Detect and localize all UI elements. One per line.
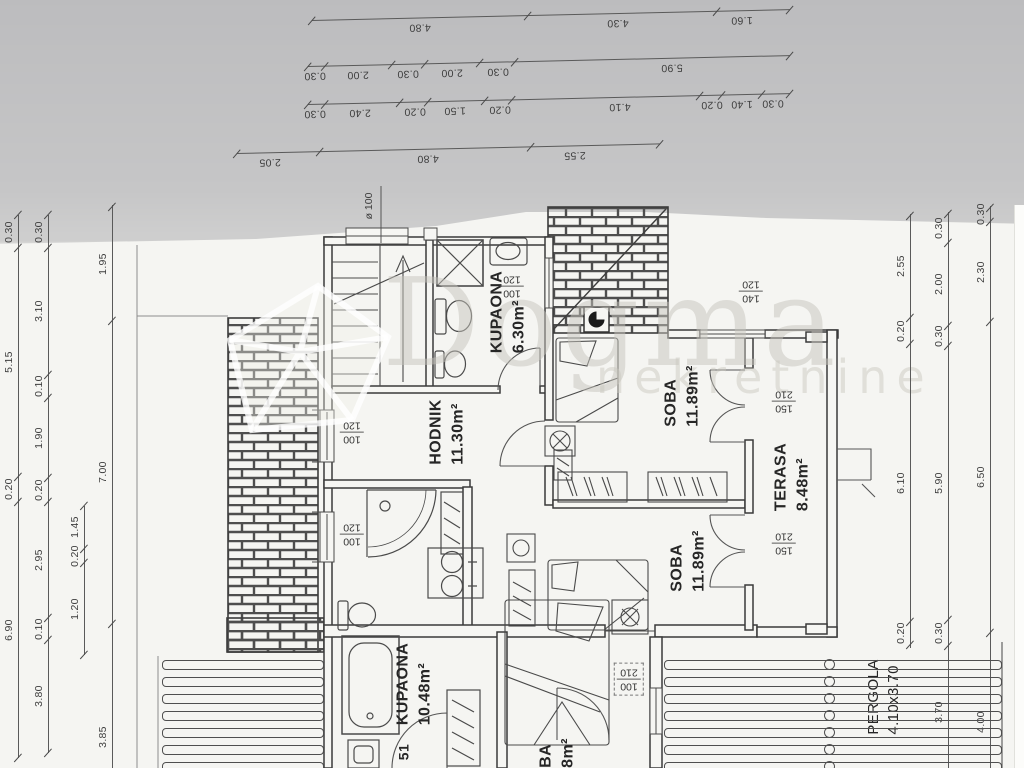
opening-size-value: 120 xyxy=(340,520,364,534)
dimension-label: 2.05 xyxy=(259,156,281,168)
room-label-partial-51: 51 xyxy=(395,744,414,760)
dimension-label: 0.30 xyxy=(397,67,419,79)
pergola-post xyxy=(824,761,835,768)
pergola-slat xyxy=(162,677,324,687)
dimension-label: 0.20 xyxy=(701,99,723,111)
dimension-line xyxy=(910,214,911,648)
dimension-label: 0.30 xyxy=(3,221,15,243)
opening-size-value: 210 xyxy=(772,529,796,543)
dimension-label: 1.45 xyxy=(69,516,81,538)
dimension-label: 0.30 xyxy=(933,217,945,239)
dimension-label: 0.20 xyxy=(3,478,15,500)
pergola-post xyxy=(824,710,835,721)
dimension-label: 2.40 xyxy=(349,107,371,119)
opening-size-value: 120 xyxy=(500,272,524,286)
window-kupaona-1-size-label: 100120 xyxy=(500,272,524,299)
dimension-label: 0.20 xyxy=(895,320,907,342)
dimension-label: 0.30 xyxy=(933,325,945,347)
pergola-post xyxy=(824,659,835,670)
room-name: SOBA xyxy=(666,530,688,592)
room-area: 11.89m² xyxy=(682,365,704,427)
room-label-soba-1: SOBA 11.89m² xyxy=(660,365,703,427)
window-soba-1-north-size-label: 140120 xyxy=(739,277,763,304)
room-label-terasa: TERASA 8.48m² xyxy=(770,443,813,511)
dimension-line xyxy=(48,215,49,753)
dimension-label: 3.85 xyxy=(97,726,109,748)
opening-size-value: 100 xyxy=(617,680,641,693)
dimension-label: 0.20 xyxy=(33,479,45,501)
opening-size-value: 100 xyxy=(340,535,364,548)
dimension-label: 6.10 xyxy=(895,472,907,494)
dimension-label: 0.20 xyxy=(69,545,81,567)
room-label-soba-3-partial: BA 8m² xyxy=(535,738,578,768)
dimension-label: 0.30 xyxy=(304,70,326,82)
room-area: 8.48m² xyxy=(792,443,814,511)
dimension-line xyxy=(18,215,19,758)
dimension-label: 1.40 xyxy=(731,98,753,110)
pipe-diameter-label: ø 100 xyxy=(363,193,375,220)
opening-size-value: 210 xyxy=(772,387,796,401)
dimension-label: 5.90 xyxy=(661,61,683,73)
dimension-label: 4.10 xyxy=(609,101,631,113)
dimension-label: 2.00 xyxy=(933,273,945,295)
window-hodnik-size-label: 100120 xyxy=(340,418,364,445)
dimension-label: 2.95 xyxy=(33,549,45,571)
dimension-label: 5.15 xyxy=(3,351,15,373)
room-area: 10.48m² xyxy=(414,643,436,726)
pergola-post xyxy=(824,727,835,738)
room-name: 51 xyxy=(395,744,414,760)
pergola-slat xyxy=(162,660,324,670)
opening-size-value: 210 xyxy=(617,665,641,679)
room-label-hodnik: HODNIK 11.30m² xyxy=(425,399,468,465)
pergola-post xyxy=(824,676,835,687)
pergola-slat xyxy=(162,711,324,721)
opening-size-value: 120 xyxy=(739,277,763,291)
room-name: KUPAONA xyxy=(392,643,414,726)
dimension-label: 0.10 xyxy=(33,375,45,397)
dimension-label: 0.30 xyxy=(762,97,784,109)
watermark-sub-text: nekretnine xyxy=(596,350,934,404)
dimension-label: 0.20 xyxy=(489,103,511,115)
dimension-label: 4.80 xyxy=(409,21,431,33)
door-soba-3-size-label: 100210 xyxy=(617,665,641,692)
dimension-label: 5.90 xyxy=(933,472,945,494)
pergola-post xyxy=(824,693,835,704)
dimension-label: 4.30 xyxy=(607,17,629,29)
dimension-label: 0.30 xyxy=(33,221,45,243)
room-name: HODNIK xyxy=(425,399,447,465)
dimension-label: 3.10 xyxy=(33,300,45,322)
room-area: 11.30m² xyxy=(447,399,469,465)
dimension-label: 0.30 xyxy=(975,203,987,225)
dimension-label: 2.00 xyxy=(347,69,369,81)
dimension-label: 4.80 xyxy=(417,152,439,164)
room-area: 11.89m² xyxy=(688,530,710,592)
room-name: TERASA xyxy=(770,443,792,511)
pergola-slat xyxy=(162,762,324,768)
dimension-label: 6.50 xyxy=(975,466,987,488)
room-name: BA xyxy=(535,738,557,768)
dimension-label: 2.55 xyxy=(895,255,907,277)
opening-size-value: 150 xyxy=(772,402,796,415)
dimension-label: 3.80 xyxy=(33,685,45,707)
opening-size-value: 140 xyxy=(739,292,763,305)
dimension-label: 6.90 xyxy=(3,619,15,641)
room-label-kupaona-2: KUPAONA 10.48m² xyxy=(392,643,435,726)
pergola-slat xyxy=(162,728,324,738)
dimension-label: 0.10 xyxy=(33,618,45,640)
dimension-label: 0.30 xyxy=(487,65,509,77)
door-soba-2-terasa-size-label: 150210 xyxy=(772,529,796,556)
dimension-label: 0.30 xyxy=(304,108,326,120)
dimension-label: 2.00 xyxy=(441,66,463,78)
dimension-label: 0.30 xyxy=(933,622,945,644)
dimension-label: 7.00 xyxy=(97,461,109,483)
dimension-label: 1.60 xyxy=(731,14,753,26)
pergola-slat xyxy=(162,694,324,704)
opening-size-value: 100 xyxy=(500,287,524,300)
pergola-slat xyxy=(162,745,324,755)
dimension-line xyxy=(112,205,113,768)
dimension-label: 2.55 xyxy=(564,149,586,161)
pergola-post xyxy=(824,744,835,755)
door-soba-1-terasa-size-label: 150210 xyxy=(772,387,796,414)
dimension-label: 1.90 xyxy=(33,427,45,449)
room-name: SOBA xyxy=(660,365,682,427)
scanned-floor-plan: Dogma nekretnine KUPAONA 6.30m² HODNIK 1… xyxy=(0,0,1024,768)
dimension-label: 1.20 xyxy=(69,598,81,620)
opening-size-value: 150 xyxy=(772,544,796,557)
opening-size-value: 120 xyxy=(340,418,364,432)
dimension-label: 0.20 xyxy=(895,622,907,644)
window-kupaona-2-size-label: 100120 xyxy=(340,520,364,547)
dimension-label: 1.95 xyxy=(97,253,109,275)
room-label-soba-2: SOBA 11.89m² xyxy=(666,530,709,592)
room-area: 8m² xyxy=(557,738,579,768)
dimension-label: 1.50 xyxy=(444,104,466,116)
opening-size-value: 100 xyxy=(340,433,364,446)
dimension-label: 2.30 xyxy=(975,261,987,283)
dimension-line xyxy=(84,506,85,655)
dimension-label: 0.20 xyxy=(404,105,426,117)
